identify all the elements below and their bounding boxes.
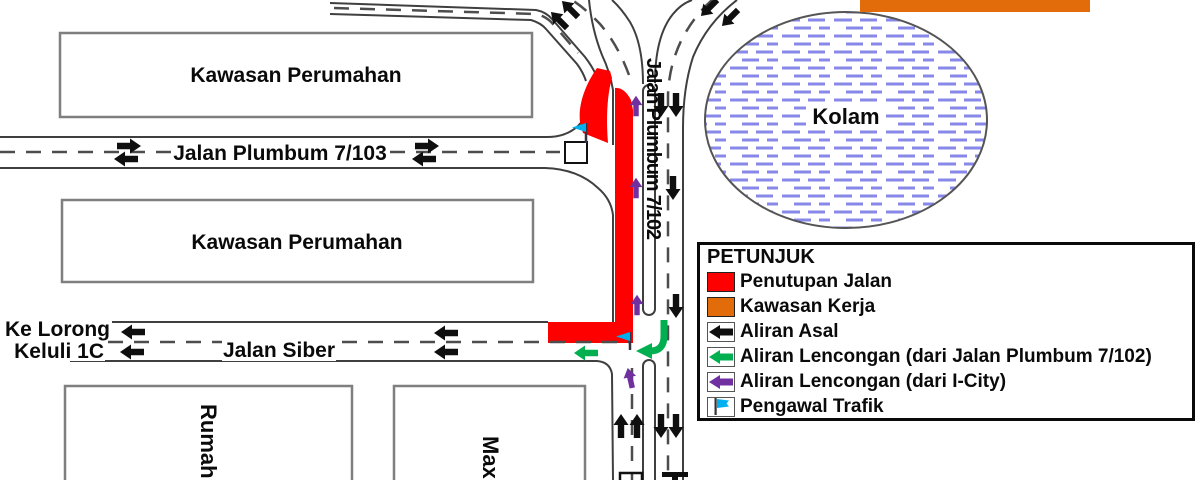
flow-arrow-southwest — [717, 5, 743, 31]
flow-arrow-west — [434, 326, 458, 341]
legend-item-aliran-asal: Aliran Asal — [707, 319, 1192, 344]
jalan-siber-label: Jalan Siber — [223, 339, 335, 362]
diversion-turn-arrowhead — [636, 343, 652, 359]
legend-item-lencongan-plumbum: Aliran Lencongan (dari Jalan Plumbum 7/1… — [707, 344, 1192, 369]
traffic-controller-flag-icon — [707, 397, 735, 417]
flow-arrow-south — [669, 294, 684, 318]
flow-arrow-west — [121, 325, 145, 340]
legend-item-pengawal-trafik: Pengawal Trafik — [707, 394, 1192, 419]
traffic-diversion-map: Kolam — [0, 0, 1200, 480]
work-area-strip — [860, 0, 1090, 12]
clipped-symbol-right — [662, 472, 688, 480]
flow-arrow-west — [120, 345, 144, 360]
purple-diversion-arrow-icon — [707, 372, 735, 392]
legend-item-lencongan-icity: Aliran Lencongan (dari I-City) — [707, 369, 1192, 394]
diversion-turn-curve — [650, 320, 664, 351]
flow-arrow-west — [434, 345, 458, 360]
flow-arrow-south — [669, 414, 684, 438]
original-flow-arrow-icon — [707, 322, 735, 342]
nb-centreline-top-curve — [572, 0, 629, 75]
flow-arrow-west — [114, 152, 138, 167]
pond-kolam: Kolam — [705, 12, 987, 228]
legend-item-kawasan-kerja: Kawasan Kerja — [707, 294, 1192, 319]
closure-swatch-icon — [707, 272, 735, 292]
maxis-label: Maxis — [478, 436, 503, 480]
pond-label: Kolam — [812, 104, 879, 129]
to-keluli-label-line1: Ke Lorong — [5, 318, 110, 341]
legend-title: PETUNJUK — [707, 246, 1192, 269]
residential-area-1-label: Kawasan Perumahan — [190, 64, 401, 87]
flow-arrow-west — [412, 152, 436, 167]
flow-arrow-south — [669, 93, 684, 117]
jalan-plumbum-7102-label: Jalan Plumbum 7/102 — [642, 58, 664, 240]
work-area-swatch-icon — [707, 297, 735, 317]
legend-panel: PETUNJUK Penutupan Jalan Kawasan Kerja A… — [697, 242, 1195, 421]
diversion-arrow-west — [574, 346, 598, 361]
green-diversion-arrow-icon — [707, 347, 735, 367]
jalan-plumbum-7103-label: Jalan Plumbum 7/103 — [173, 142, 387, 165]
flow-arrow-north — [614, 414, 629, 438]
diversion-arrow-north-tilted — [621, 367, 638, 390]
road-closure-shapes — [548, 68, 633, 343]
median-island-lower — [643, 360, 655, 480]
junction-island-box — [565, 142, 587, 163]
shophouses-label: Rumah K — [196, 404, 221, 480]
residential-area-2-label: Kawasan Perumahan — [191, 231, 402, 254]
to-keluli-label-line2: Keluli 1C — [14, 340, 104, 363]
legend-item-penutupan-jalan: Penutupan Jalan — [707, 269, 1192, 294]
